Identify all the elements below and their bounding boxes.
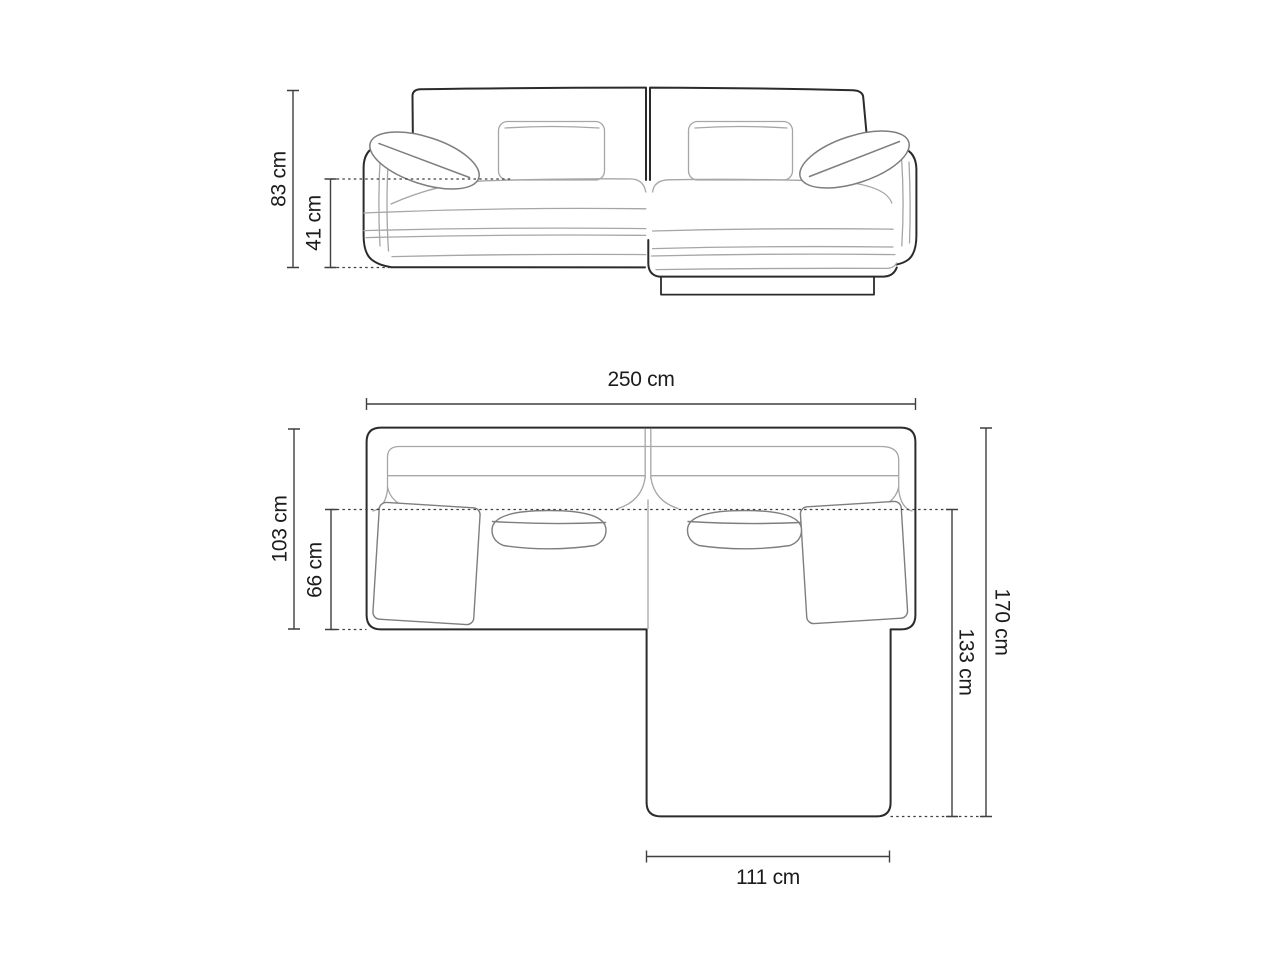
- label-seat-depth: 66 cm: [304, 542, 327, 598]
- label-chaise-width: 111 cm: [736, 866, 800, 889]
- seat-left-seam-3: [366, 235, 646, 238]
- back-cushion-left: [499, 122, 605, 181]
- armrest-right-inner-seam-1: [902, 157, 904, 246]
- back-cushion-right: [689, 122, 793, 181]
- backrest-band-top: [388, 447, 899, 491]
- plan-pillow-right: [800, 501, 908, 624]
- back-cushion-left-seam: [505, 127, 599, 129]
- seat-right-seam-1: [653, 229, 893, 231]
- top-plan-view: 250 cm 103 cm 66 cm 170 cm 133 cm 111 cm: [269, 368, 1014, 889]
- dimension-width-total: [367, 398, 916, 410]
- armrest-left-inner-seam-1: [379, 152, 381, 246]
- back-cushion-right-seam: [695, 127, 787, 129]
- seat-pad-right: [688, 511, 802, 549]
- seat-right-base-seam: [656, 263, 897, 270]
- diagram-canvas: 83 cm 41 cm: [0, 0, 1280, 960]
- chaise-front-bottom: [648, 240, 897, 277]
- seat-pad-left: [492, 511, 606, 549]
- seat-right-seam-2: [653, 247, 893, 249]
- label-width-total: 250 cm: [607, 368, 674, 391]
- plan-armrest-pillows: [373, 501, 908, 625]
- dimension-seat-depth: [325, 510, 337, 630]
- dimension-seat-height: [325, 179, 337, 268]
- label-seat-height: 41 cm: [303, 195, 326, 251]
- plan-pillow-left: [373, 502, 481, 625]
- backrest-center-curl-left: [618, 477, 645, 509]
- label-chaise-depth: 133 cm: [955, 628, 978, 695]
- seat-left-seam-1: [364, 208, 646, 213]
- armrest-right-outline: [896, 148, 916, 265]
- label-body-depth: 103 cm: [269, 495, 292, 562]
- plan-seat-pads: [492, 511, 802, 549]
- label-total-depth: 170 cm: [991, 588, 1014, 655]
- seat-left-base-seam: [392, 254, 646, 256]
- chaise-plinth: [661, 277, 874, 295]
- dimension-chaise-width: [647, 851, 890, 863]
- armrest-right-inner-seam-2: [909, 162, 910, 243]
- backrest-center-curl-right: [651, 477, 678, 509]
- seat-right-seam-3: [652, 254, 896, 256]
- seat-left-seam-2: [364, 228, 646, 230]
- sofa-dimension-diagram: 83 cm 41 cm: [0, 0, 1280, 960]
- front-dimension-labels: 83 cm 41 cm: [268, 151, 326, 251]
- front-elevation-view: 83 cm 41 cm: [268, 88, 917, 295]
- front-sofa-dark-outline: [364, 88, 917, 295]
- label-height-total: 83 cm: [268, 151, 291, 207]
- front-armrest-pillows: [363, 120, 916, 201]
- dimension-total-depth: [980, 428, 992, 817]
